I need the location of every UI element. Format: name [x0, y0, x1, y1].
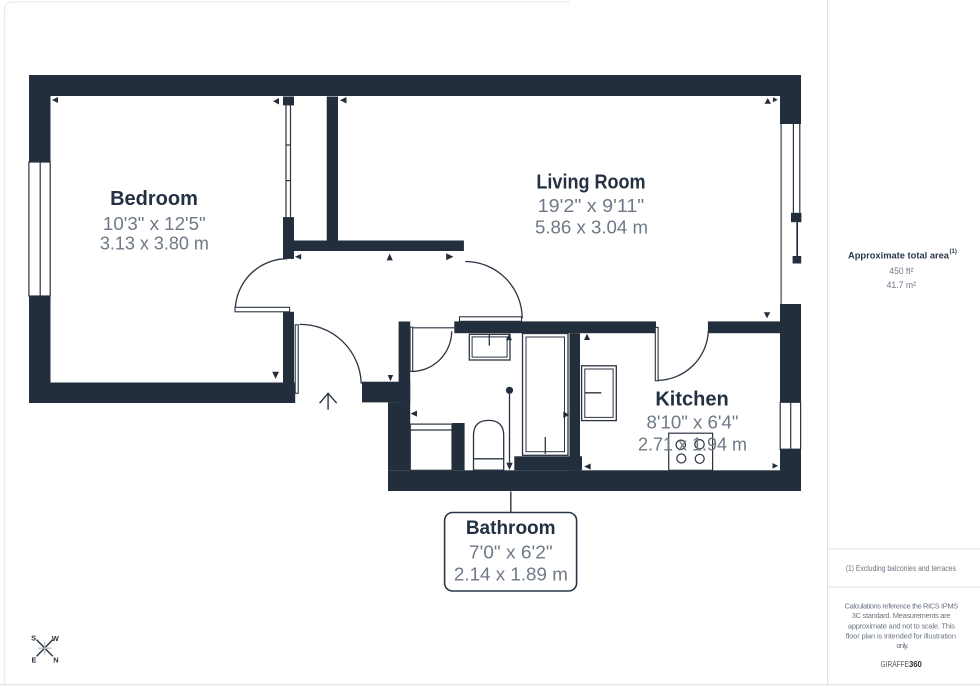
svg-text:W: W: [52, 634, 60, 643]
svg-text:450 ft²: 450 ft²: [889, 266, 913, 277]
svg-text:3.13 x 3.80 m: 3.13 x 3.80 m: [100, 234, 209, 254]
svg-text:(1): (1): [950, 249, 957, 255]
svg-text:2.71 x 1.94 m: 2.71 x 1.94 m: [638, 435, 747, 455]
svg-text:19'2" x 9'11": 19'2" x 9'11": [538, 196, 645, 216]
svg-text:Approximate total area: Approximate total area: [848, 250, 950, 261]
svg-text:8'10" x 6'4": 8'10" x 6'4": [647, 413, 739, 433]
svg-text:Calculations reference the RIC: Calculations reference the RICS IPMS: [845, 601, 959, 610]
svg-text:GIRAFFE360: GIRAFFE360: [881, 659, 923, 669]
svg-text:Bathroom: Bathroom: [466, 518, 556, 539]
svg-text:41.7 m²: 41.7 m²: [887, 280, 916, 291]
svg-text:Kitchen: Kitchen: [655, 389, 728, 411]
svg-text:Bedroom: Bedroom: [110, 188, 198, 210]
svg-text:5.86 x 3.04 m: 5.86 x 3.04 m: [535, 218, 648, 238]
svg-text:Living Room: Living Room: [536, 172, 645, 194]
svg-text:10'3" x 12'5": 10'3" x 12'5": [103, 214, 206, 234]
svg-text:N: N: [53, 656, 58, 665]
svg-text:(1) Excluding balconies and te: (1) Excluding balconies and terraces: [846, 564, 956, 573]
svg-text:S: S: [31, 633, 36, 642]
svg-text:floor plan is intended for ill: floor plan is intended for illustration: [846, 631, 956, 640]
svg-text:only.: only.: [896, 641, 908, 650]
svg-text:7'0" x 6'2": 7'0" x 6'2": [469, 543, 553, 563]
svg-text:3C standard. Measurements are: 3C standard. Measurements are: [852, 611, 951, 620]
svg-text:2.14 x 1.89 m: 2.14 x 1.89 m: [454, 565, 568, 585]
svg-text:E: E: [31, 656, 36, 665]
svg-text:approximate and not to scale.: approximate and not to scale. This: [848, 621, 955, 630]
